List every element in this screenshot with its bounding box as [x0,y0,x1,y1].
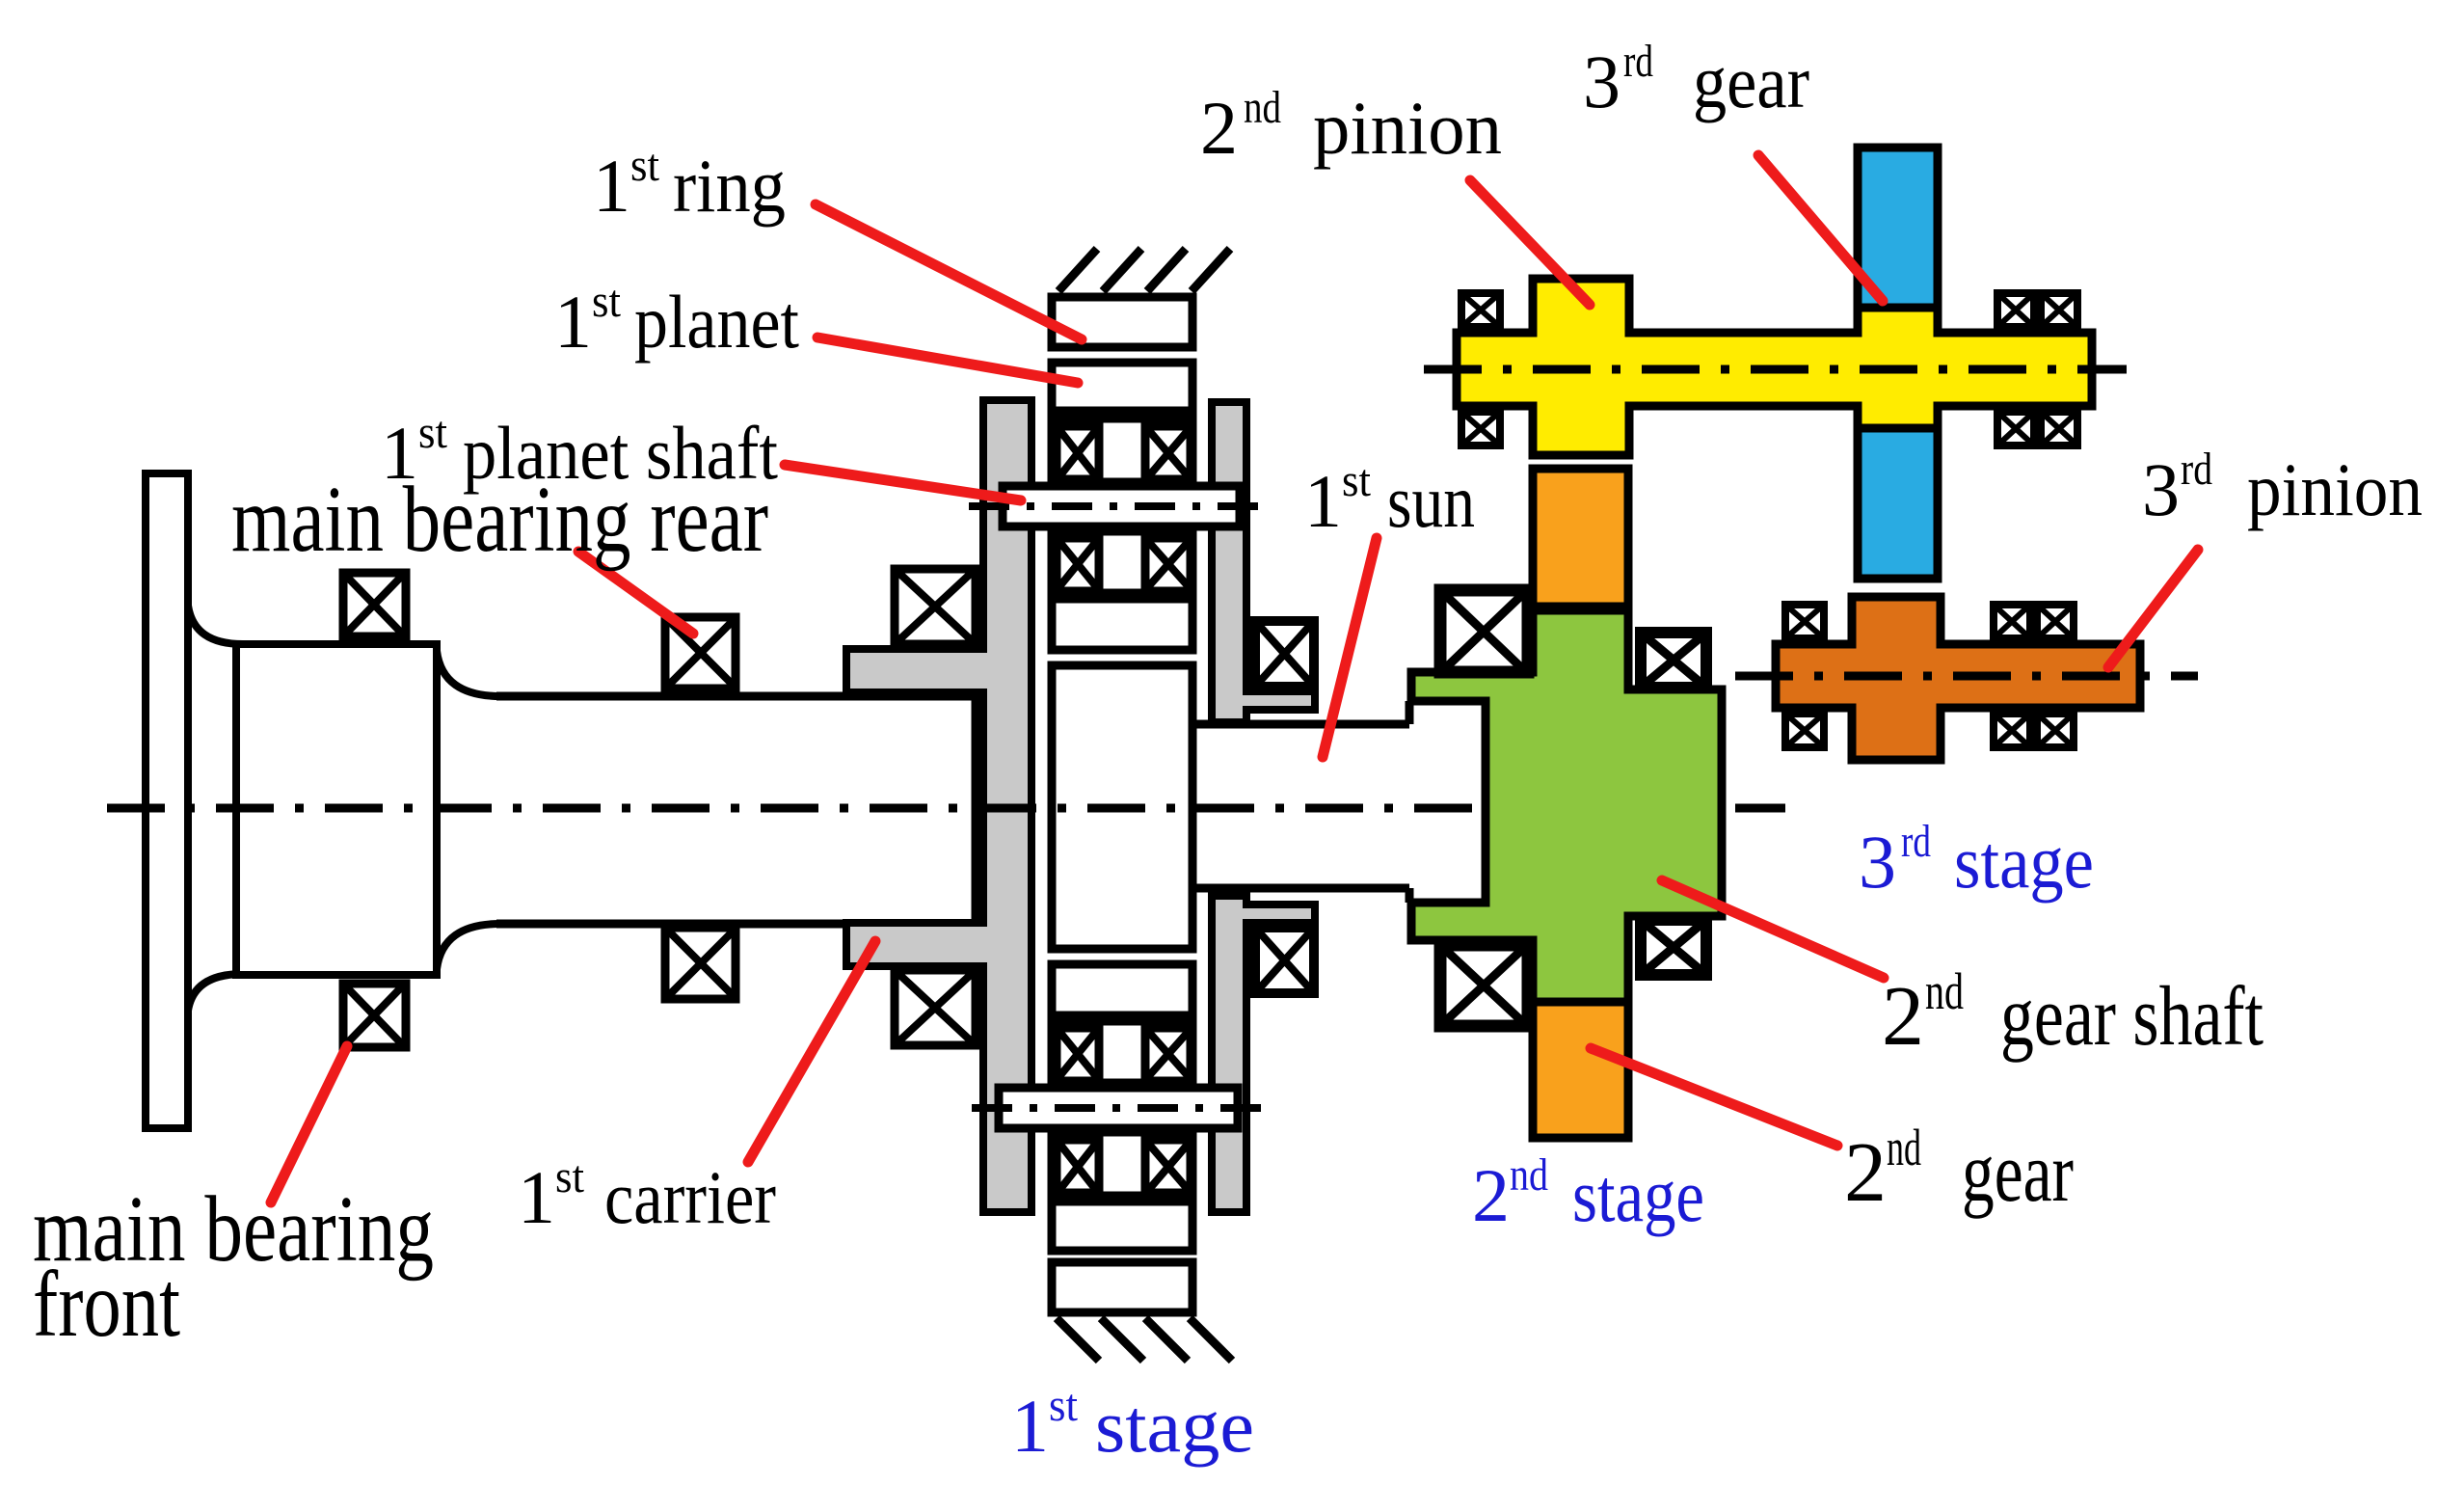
svg-text:main bearing rear: main bearing rear [231,468,768,571]
svg-text:stage: stage [1095,1384,1254,1468]
svg-text:1: 1 [554,280,592,364]
svg-text:3: 3 [1583,40,1620,123]
svg-text:nd: nd [1510,1149,1548,1201]
svg-text:st: st [1342,455,1372,506]
svg-text:1: 1 [518,1155,555,1239]
svg-text:planet: planet [634,280,799,364]
svg-text:2: 2 [1200,86,1238,170]
svg-text:2: 2 [1844,1126,1887,1220]
svg-text:nd: nd [1244,82,1281,133]
svg-text:stage: stage [1572,1153,1704,1237]
svg-text:nd: nd [1887,1119,1921,1176]
svg-text:st: st [630,140,660,191]
svg-text:rd: rd [1623,36,1653,87]
svg-text:3: 3 [2142,447,2180,531]
svg-text:st: st [418,407,448,458]
svg-text:nd: nd [1925,962,1964,1020]
svg-text:sun: sun [1387,459,1475,543]
svg-text:stage: stage [1954,820,2094,904]
svg-text:st: st [592,276,622,327]
svg-text:st: st [1049,1380,1079,1431]
svg-text:3: 3 [1859,820,1896,904]
svg-text:1: 1 [1304,459,1342,543]
svg-text:gear shaft: gear shaft [2000,970,2263,1064]
svg-text:pinion: pinion [1313,86,1502,170]
svg-text:front: front [33,1253,180,1356]
svg-text:gear: gear [1693,40,1809,123]
svg-text:2: 2 [1472,1153,1510,1237]
svg-text:rd: rd [2181,444,2212,495]
svg-text:carrier: carrier [604,1155,776,1239]
svg-text:pinion: pinion [2247,447,2423,531]
svg-text:2: 2 [1882,970,1924,1064]
svg-text:ring: ring [673,144,786,228]
svg-text:1: 1 [593,144,630,228]
svg-text:gear: gear [1962,1126,2074,1220]
svg-text:rd: rd [1901,816,1931,867]
svg-text:1: 1 [1011,1384,1049,1468]
svg-text:st: st [555,1151,585,1202]
